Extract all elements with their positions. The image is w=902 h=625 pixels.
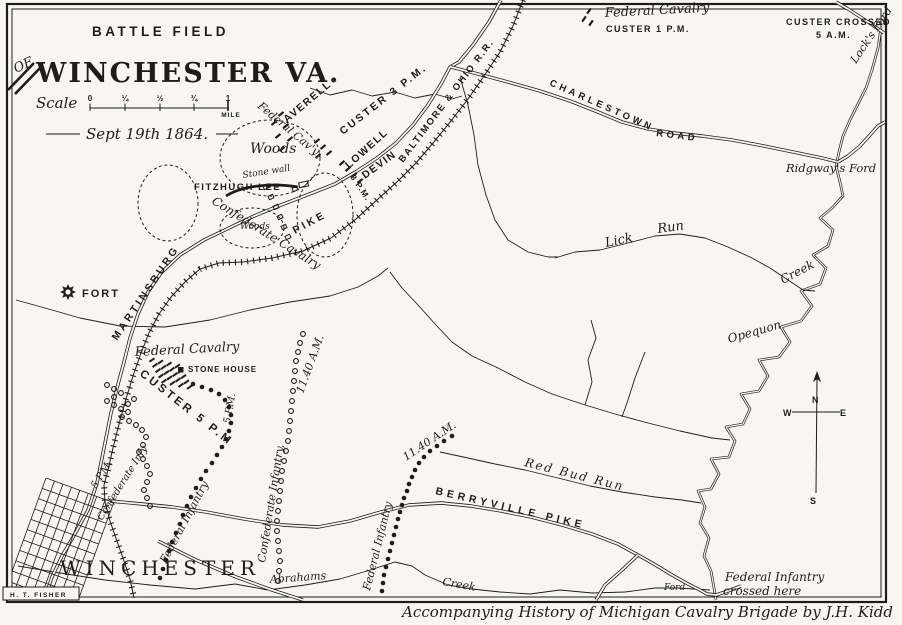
- confederate-infantry-marker: [126, 410, 131, 415]
- federal-infantry-marker: [209, 388, 214, 393]
- charlestown-road: [838, 122, 885, 162]
- federal-infantry-marker: [405, 489, 410, 494]
- custer-5pm-cavalry-marker: [173, 373, 178, 376]
- scale-tick-label: ¼: [122, 94, 130, 103]
- woods-upper: Woods: [250, 141, 296, 157]
- woods-blob-icon: [138, 165, 198, 241]
- ford-bottom: Ford: [663, 583, 685, 593]
- confederate-infantry-marker: [127, 419, 132, 424]
- map-date: Sept 19th 1864.: [86, 125, 208, 143]
- custer-5pm-cavalry-marker: [156, 369, 161, 372]
- custer-5pm-cavalry-marker: [164, 371, 169, 374]
- red-bud-run: Red Bud Run: [522, 455, 625, 494]
- street-line: [35, 509, 103, 534]
- confederate-infantry-marker: [289, 409, 294, 414]
- confederate-infantry-marker: [294, 359, 299, 364]
- confederate-infantry-marker: [145, 464, 150, 469]
- confederate-infantry-marker: [301, 332, 306, 337]
- scale-word: Scale: [36, 94, 77, 112]
- confederate-infantry-marker: [145, 480, 150, 485]
- confederate-infantry-marker: [144, 435, 149, 440]
- charlestown-road: ROAD: [656, 128, 699, 144]
- confederate-infantry-marker: [105, 399, 110, 404]
- federal-infantry-marker: [382, 573, 387, 578]
- compass-e-label: E: [840, 408, 846, 418]
- confederate-infantry-marker: [132, 397, 137, 402]
- fed-crossed-1: Federal Infantry: [724, 570, 824, 584]
- stream-line: [460, 77, 558, 257]
- federal-cavalry-marker: [327, 151, 332, 155]
- confederate-infantry-marker: [296, 350, 301, 355]
- federal-infantry-marker: [394, 525, 399, 530]
- fed-1140-time: 11.40 A.M.: [400, 418, 458, 463]
- federal-infantry-marker: [402, 496, 407, 501]
- winchester-town: WINCHESTER: [60, 556, 260, 580]
- confederate-infantry-marker: [287, 429, 292, 434]
- custer-5pm-cavalry-marker: [158, 360, 163, 363]
- federal-infantry-marker: [215, 453, 220, 458]
- scale-tick-label: 1: [226, 94, 231, 103]
- creek-lick: Creek: [778, 257, 817, 286]
- custer-5pm-cavalry-marker: [167, 376, 172, 379]
- custer-5pm-cavalry-marker: [187, 385, 192, 388]
- streams-layer: [16, 28, 881, 600]
- scale-tick-label: 0: [88, 94, 93, 103]
- stone-wall: Stone wall: [242, 164, 291, 181]
- compass-n-label: N: [812, 395, 819, 405]
- confederate-infantry-marker: [134, 423, 139, 428]
- confederate-cavalry-marker: [277, 214, 283, 219]
- federal-infantry-marker: [392, 533, 397, 538]
- federal-infantry-marker: [410, 475, 415, 480]
- federal-infantry-marker: [390, 541, 395, 546]
- map-labels-layer: BATTLE FIELDOFWINCHESTER VA.Federal Cava…: [10, 0, 895, 621]
- stone-house: STONE HOUSE: [188, 365, 257, 374]
- confederate-infantry-marker: [275, 529, 280, 534]
- fed-5pm-time: 5 P.M.: [222, 392, 238, 424]
- confederate-infantry-marker: [278, 559, 283, 564]
- confederate-infantry-marker: [105, 383, 110, 388]
- street-line: [27, 530, 95, 555]
- federal-infantry-marker: [220, 445, 225, 450]
- federal-infantry-marker: [384, 565, 389, 570]
- custer-1pm: CUSTER 1 P.M.: [606, 24, 690, 34]
- scale-unit: MILE: [221, 112, 241, 119]
- confederate-infantry-marker: [119, 391, 124, 396]
- custer-5pm-cavalry-marker: [179, 383, 184, 386]
- federal-cavalry-marker: [589, 20, 593, 25]
- federal-infantry-marker: [386, 557, 391, 562]
- street-line: [31, 519, 99, 544]
- federal-cavalry-marker: [582, 16, 586, 21]
- charlestown-road: [451, 67, 838, 162]
- custer-5pm-cavalry-marker: [170, 368, 175, 371]
- woods-small: Woods: [240, 222, 270, 232]
- confederate-infantry-marker: [277, 549, 282, 554]
- custer-crossed-time: 5 A.M.: [816, 30, 851, 40]
- opequon: Opequon: [726, 317, 783, 346]
- scale-tick-label: ¾: [191, 94, 199, 103]
- confederate-infantry-marker: [126, 402, 131, 407]
- confederate-infantry-marker: [288, 419, 293, 424]
- map-canvas: 0¼½¾1 BATTLE FIELDOFWINCHESTER VA.Federa…: [0, 0, 902, 625]
- title-battle-field: BATTLE FIELD: [92, 24, 229, 39]
- federal-infantry-marker: [191, 382, 196, 387]
- fed-crossed-2: crossed here: [723, 584, 801, 598]
- stream-line: [16, 268, 388, 327]
- stream-line: [585, 320, 596, 405]
- fisher: H. T. FISHER: [10, 592, 67, 599]
- confederate-cavalry: Confederate Cavalry: [209, 194, 323, 273]
- stream-line: [622, 352, 645, 417]
- federal-infantry-marker: [381, 581, 386, 586]
- custer-5pm-cavalry-marker: [153, 364, 158, 367]
- title-of: OF: [11, 54, 36, 76]
- custer-5pm: CUSTER 5 P.M: [137, 368, 235, 448]
- confederate-infantry-marker: [293, 369, 298, 374]
- confederate-infantry-marker: [286, 439, 291, 444]
- confederate-infantry-marker: [298, 341, 303, 346]
- street-line: [1, 602, 69, 625]
- federal-infantry-marker: [417, 461, 422, 466]
- stream-line: [555, 234, 815, 291]
- compass-s-label: S: [810, 496, 816, 506]
- federal-cavalry-marker: [276, 134, 281, 138]
- federal-infantry-marker: [200, 385, 205, 390]
- berryville-pike: BERRYVILLE PIKE: [434, 485, 586, 531]
- conf-inf-1140: Confederate Infantry,: [255, 443, 287, 563]
- confederate-infantry-marker: [148, 472, 153, 477]
- federal-infantry-marker: [398, 510, 403, 515]
- conf-5pm-time: 5 P.M.: [89, 459, 115, 491]
- confederate-infantry-marker: [145, 496, 150, 501]
- compass-rose-icon: [792, 371, 840, 493]
- federal-infantry-marker: [396, 517, 401, 522]
- federal-infantry-marker: [217, 392, 222, 397]
- confederate-infantry-marker: [290, 399, 295, 404]
- pike: PIKE: [291, 209, 329, 237]
- federal-infantry-marker: [388, 549, 393, 554]
- scale-tick-label: ½: [157, 94, 164, 103]
- confederate-cavalry-marker: [268, 194, 274, 199]
- screenshot-root: 0¼½¾1 BATTLE FIELDOFWINCHESTER VA.Federa…: [0, 0, 902, 625]
- custer-5pm-cavalry-marker: [167, 362, 172, 365]
- opequon-creek-line: [698, 28, 881, 600]
- fort-star-icon: [65, 289, 70, 294]
- federal-infantry-marker: [204, 469, 209, 474]
- federal-cavalry-5pm: Federal Cavalry: [133, 339, 240, 360]
- confederate-infantry-marker: [142, 488, 147, 493]
- federal-infantry-marker: [400, 503, 405, 508]
- federal-infantry-marker: [380, 589, 385, 594]
- lick: Lick: [603, 230, 635, 251]
- fort: FORT: [82, 288, 120, 300]
- federal-infantry-marker: [407, 482, 412, 487]
- custer-3pm: CUSTER 3 P.M.: [337, 62, 429, 138]
- custer-5pm-cavalry-marker: [161, 366, 166, 369]
- road: [596, 555, 638, 600]
- charlestown: CHARLESTOWN: [548, 78, 656, 134]
- baltimore-ohio-rr: BALTIMORE & OHIO R.R.: [397, 37, 497, 165]
- martinsburg: MARTINSBURG: [110, 243, 182, 342]
- federal-infantry-marker: [413, 468, 418, 473]
- custer-5pm-cavalry-marker: [159, 374, 164, 377]
- caption: Accompanying History of Michigan Cavalry…: [400, 603, 893, 621]
- custer-5pm-cavalry-marker: [170, 381, 175, 384]
- federal-infantry-marker: [210, 461, 215, 466]
- stream-line: [390, 272, 730, 440]
- conf-1140-time: 11.40 A.M.: [294, 333, 327, 395]
- federal-infantry-marker: [422, 455, 427, 460]
- creek-abrahams: Creek: [441, 575, 476, 594]
- ridgways-ford: Ridgway's Ford: [785, 161, 876, 175]
- confederate-infantry-marker: [276, 539, 281, 544]
- street-line: [38, 499, 106, 524]
- compass-w-label: W: [783, 408, 792, 418]
- custer-5pm-cavalry-marker: [176, 378, 181, 381]
- custer-5pm-cavalry-marker: [184, 380, 189, 383]
- custer-5pm-cavalry-marker: [181, 375, 186, 378]
- fitzhugh-lee: FITZHUGH LEE: [194, 182, 281, 193]
- abrahams: Abrahams: [268, 569, 327, 586]
- title-winchester-va: WINCHESTER VA.: [35, 58, 340, 89]
- confederate-infantry-marker: [140, 428, 145, 433]
